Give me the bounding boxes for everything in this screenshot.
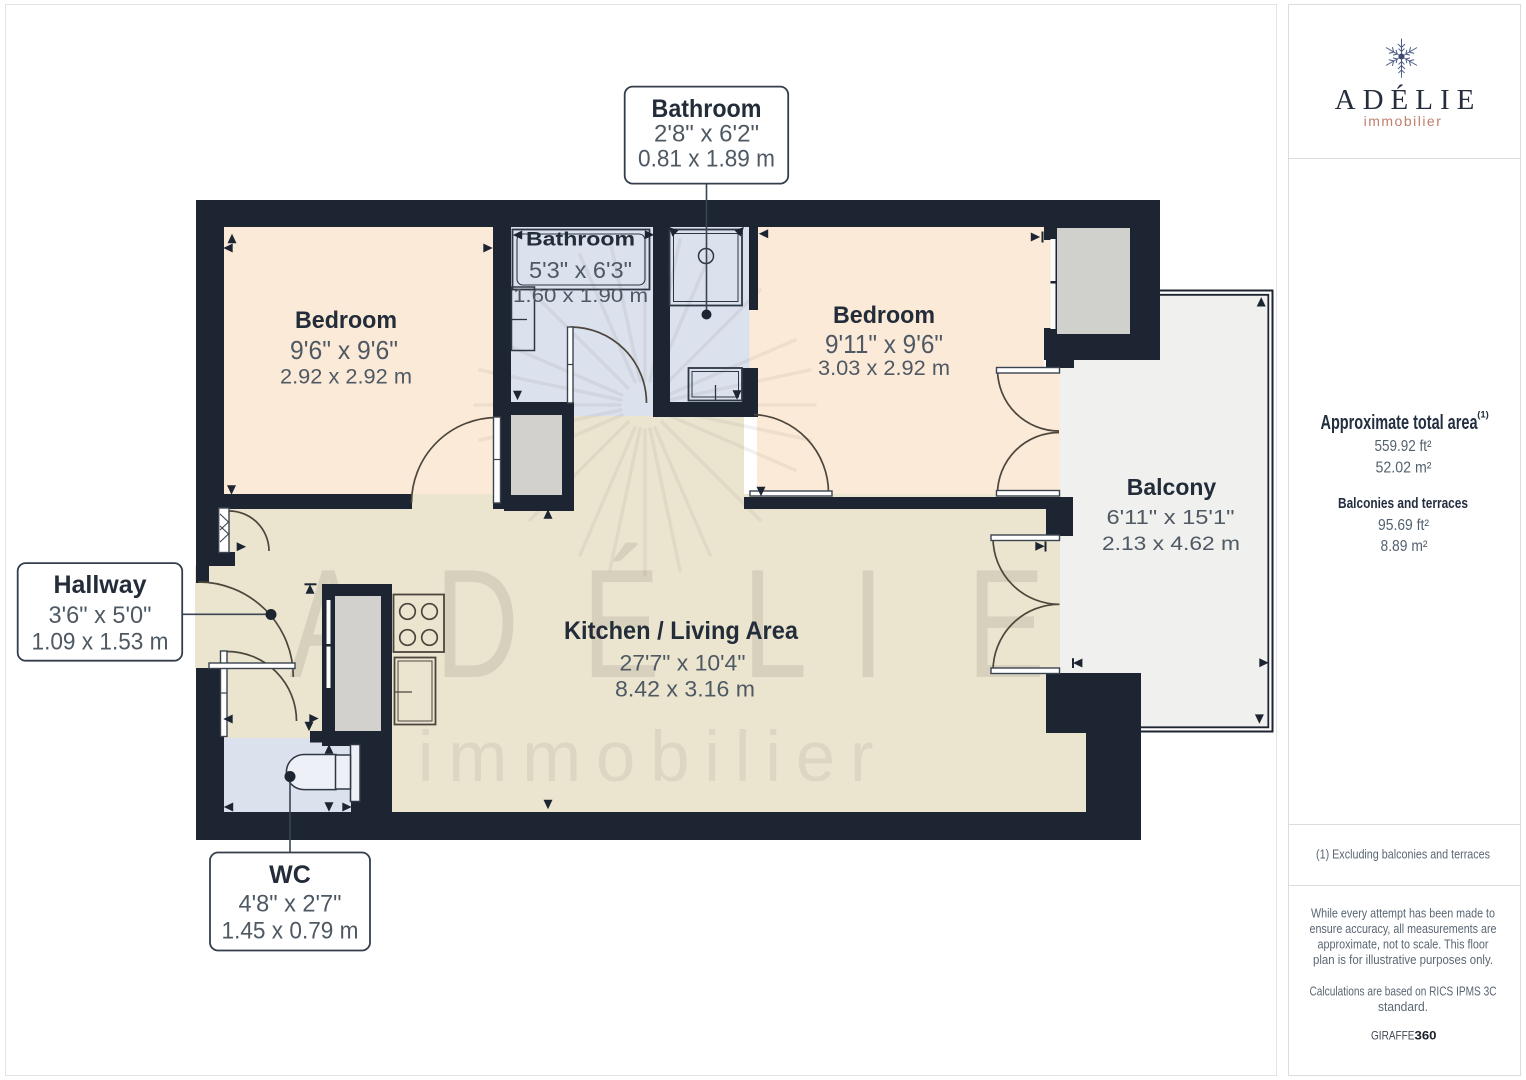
svg-text:immobilier: immobilier [418, 718, 889, 797]
svg-text:3.03 x 2.92 m: 3.03 x 2.92 m [818, 356, 950, 380]
svg-text:Bedroom: Bedroom [833, 302, 935, 329]
svg-text:9'11" x 9'6": 9'11" x 9'6" [825, 329, 943, 359]
svg-text:Calculations are based on RICS: Calculations are based on RICS IPMS 3C [1310, 984, 1497, 999]
svg-text:Bathroom: Bathroom [652, 95, 762, 123]
svg-text:approximate, not to scale. Thi: approximate, not to scale. This floor [1318, 937, 1490, 952]
svg-text:559.92 ft²: 559.92 ft² [1375, 438, 1432, 455]
svg-text:I: I [852, 538, 884, 711]
svg-text:8.42 x 3.16 m: 8.42 x 3.16 m [615, 677, 755, 702]
svg-text:0.81 x 1.89 m: 0.81 x 1.89 m [638, 146, 775, 173]
svg-text:2.13 x 4.62 m: 2.13 x 4.62 m [1102, 533, 1240, 555]
svg-text:WC: WC [269, 861, 311, 889]
svg-text:Approximate total area: Approximate total area [1321, 412, 1479, 434]
svg-text:(1): (1) [1477, 410, 1489, 421]
svg-text:27'7" x 10'4": 27'7" x 10'4" [620, 651, 746, 676]
svg-text:GIRAFFE: GIRAFFE [1371, 1029, 1415, 1043]
svg-text:ADÉLIE: ADÉLIE [1335, 83, 1482, 116]
svg-text:Hallway: Hallway [53, 571, 146, 599]
svg-text:ensure accuracy, all measureme: ensure accuracy, all measurements are [1310, 921, 1497, 936]
svg-text:6'11" x 15'1": 6'11" x 15'1" [1107, 507, 1235, 529]
svg-text:1.45 x 0.79 m: 1.45 x 0.79 m [222, 918, 359, 945]
svg-text:9'6" x 9'6": 9'6" x 9'6" [290, 335, 398, 365]
svg-text:D: D [435, 538, 519, 711]
svg-text:360: 360 [1415, 1029, 1437, 1043]
svg-text:(1) Excluding balconies and te: (1) Excluding balconies and terraces [1316, 847, 1490, 862]
svg-text:1.09 x 1.53 m: 1.09 x 1.53 m [32, 629, 169, 656]
svg-text:While every attempt has been m: While every attempt has been made to [1311, 906, 1495, 921]
svg-text:E: E [967, 538, 1045, 711]
svg-text:2.92 x 2.92 m: 2.92 x 2.92 m [280, 365, 412, 389]
svg-text:Kitchen / Living Area: Kitchen / Living Area [564, 617, 799, 645]
svg-text:95.69 ft²: 95.69 ft² [1378, 517, 1429, 534]
svg-text:immobilier: immobilier [1364, 113, 1443, 129]
svg-text:1.60 x 1.90 m: 1.60 x 1.90 m [513, 286, 648, 307]
svg-text:4'8" x 2'7": 4'8" x 2'7" [239, 891, 342, 918]
svg-text:2'8" x 6'2": 2'8" x 6'2" [654, 121, 759, 148]
svg-text:8.89 m²: 8.89 m² [1381, 538, 1428, 555]
svg-text:Balcony: Balcony [1127, 474, 1217, 500]
svg-text:Bedroom: Bedroom [295, 307, 397, 334]
svg-text:5'3" x 6'3": 5'3" x 6'3" [529, 257, 632, 283]
svg-text:plan is for illustrative purpo: plan is for illustrative purposes only. [1313, 952, 1493, 967]
svg-text:Bathroom: Bathroom [526, 229, 635, 251]
svg-text:52.02 m²: 52.02 m² [1376, 460, 1432, 477]
svg-text:Balconies and terraces: Balconies and terraces [1338, 496, 1468, 512]
svg-text:3'6" x 5'0": 3'6" x 5'0" [49, 602, 152, 629]
svg-text:standard.: standard. [1378, 999, 1428, 1014]
